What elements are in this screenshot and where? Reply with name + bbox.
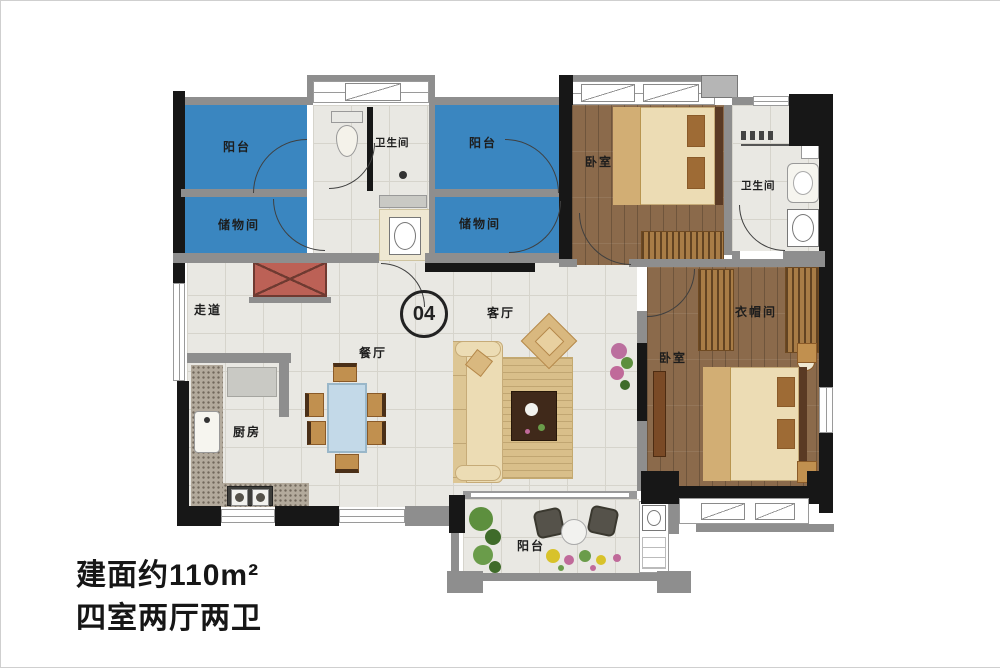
window <box>753 96 789 106</box>
towel-bar-icon <box>741 144 789 146</box>
cabinet-shelves <box>642 537 666 569</box>
wall-segment <box>629 259 825 267</box>
dining-chair-icon <box>333 363 357 382</box>
room-label-storage-w: 储物间 <box>218 216 260 233</box>
wall-segment <box>173 97 309 105</box>
wall-segment <box>724 105 732 255</box>
room-label-balcony-n: 阳台 <box>469 134 497 151</box>
dining-chair-icon <box>335 454 359 473</box>
wall-corner <box>559 75 573 105</box>
wall-segment <box>637 343 647 421</box>
dining-chair-icon <box>307 421 326 445</box>
dining-table-icon <box>327 383 367 453</box>
kitchen-cabinet <box>227 367 277 397</box>
wall-segment <box>647 486 821 498</box>
wall-segment <box>177 381 189 526</box>
window <box>339 509 405 523</box>
window <box>819 387 833 433</box>
wall-segment <box>819 94 833 387</box>
casement-window-icon <box>643 84 699 102</box>
window <box>221 509 275 523</box>
sofa-back-cushions <box>453 341 467 483</box>
casement-window-icon <box>345 83 401 101</box>
window <box>173 283 185 381</box>
wall-segment <box>696 524 834 532</box>
layout-caption: 四室两厅两卫 <box>76 593 262 637</box>
railing-post <box>447 571 483 593</box>
wall-segment <box>435 97 559 105</box>
railing-post <box>657 571 691 593</box>
washing-machine-icon <box>389 217 421 255</box>
washing-machine-ne-icon <box>787 209 819 247</box>
wall-corner <box>449 495 465 533</box>
wall-corner <box>177 506 221 526</box>
dining-chair-icon <box>367 393 386 417</box>
vanity-counter <box>379 195 427 208</box>
pillow-icon <box>777 377 795 407</box>
casement-window-icon <box>581 84 635 102</box>
flower-plant-icon <box>611 343 627 359</box>
casement-window-icon <box>755 503 795 520</box>
room-label-dining: 餐厅 <box>359 344 387 361</box>
wall-segment <box>279 353 289 417</box>
shelf-items-icon <box>741 131 777 140</box>
wall-segment <box>425 263 535 272</box>
room-label-bedroom-ne: 卧室 <box>585 153 613 170</box>
wall-segment <box>732 251 740 259</box>
area-caption: 建面约110m² <box>76 550 259 594</box>
room-label-bath-ne: 卫生间 <box>741 178 776 193</box>
wall-segment <box>307 253 379 263</box>
wall-segment <box>451 533 459 575</box>
faucet-icon <box>204 417 210 423</box>
wall-segment <box>637 311 647 343</box>
cloakroom-wardrobe-left <box>698 269 734 351</box>
wall-segment <box>783 251 825 259</box>
bed-ne-headboard <box>715 107 723 205</box>
balcony-chair-icon <box>586 504 619 537</box>
shoe-cabinet-icon <box>253 261 327 297</box>
shower-head-icon <box>399 171 407 179</box>
pillow-icon <box>687 115 705 147</box>
wall-segment <box>187 353 291 363</box>
stove-icon <box>227 486 273 506</box>
casement-window-icon <box>701 503 745 520</box>
sink-basin-icon <box>793 171 813 195</box>
room-label-balcony-nw: 阳台 <box>223 138 251 155</box>
bed-ne-blanket <box>613 107 641 205</box>
room-label-storage-n: 储物间 <box>459 215 501 232</box>
unit-number-badge: 04 <box>400 290 448 338</box>
balcony-plant-icon <box>469 507 493 531</box>
wall-segment <box>559 259 577 267</box>
wall-segment <box>425 253 559 263</box>
pillow-icon <box>687 157 705 189</box>
sofa-armrest <box>455 465 501 481</box>
balcony-table-icon <box>561 519 587 545</box>
wall-segment <box>249 297 331 303</box>
wall-segment <box>173 253 307 263</box>
balcony-railing <box>449 573 691 581</box>
room-label-living: 客厅 <box>487 304 515 321</box>
wall-segment <box>429 75 435 265</box>
wall-segment <box>559 105 572 265</box>
tea-set-icon <box>525 403 538 416</box>
dining-chair-icon <box>367 421 386 445</box>
room-label-kitchen: 厨房 <box>233 423 261 440</box>
toilet-icon <box>331 111 363 123</box>
room-label-bath-main: 卫生间 <box>375 135 410 150</box>
flower-bed-icon <box>546 549 560 563</box>
tv-console-icon <box>653 371 666 457</box>
dining-chair-icon <box>305 393 324 417</box>
floor-plan: 阳台 储物间 卫生间 阳台 储物间 卧室 卫生间 走道 餐厅 客厅 厨房 衣帽间… <box>0 0 1000 668</box>
coffee-table-icon <box>511 391 557 441</box>
sliding-door <box>463 491 637 499</box>
cloakroom-wardrobe-right <box>785 267 819 353</box>
pillow-icon <box>777 419 795 449</box>
room-label-corridor: 走道 <box>194 301 222 318</box>
bed-se-blanket <box>703 367 731 481</box>
washing-machine-s-icon <box>642 505 666 531</box>
duct-box <box>701 75 738 98</box>
room-label-cloakroom: 衣帽间 <box>735 303 777 320</box>
nightstand-icon <box>797 343 817 363</box>
wall-corner <box>807 471 833 504</box>
wall-segment <box>275 506 339 526</box>
room-label-balcony-s: 阳台 <box>517 537 545 554</box>
room-label-bedroom-se: 卧室 <box>659 349 687 366</box>
